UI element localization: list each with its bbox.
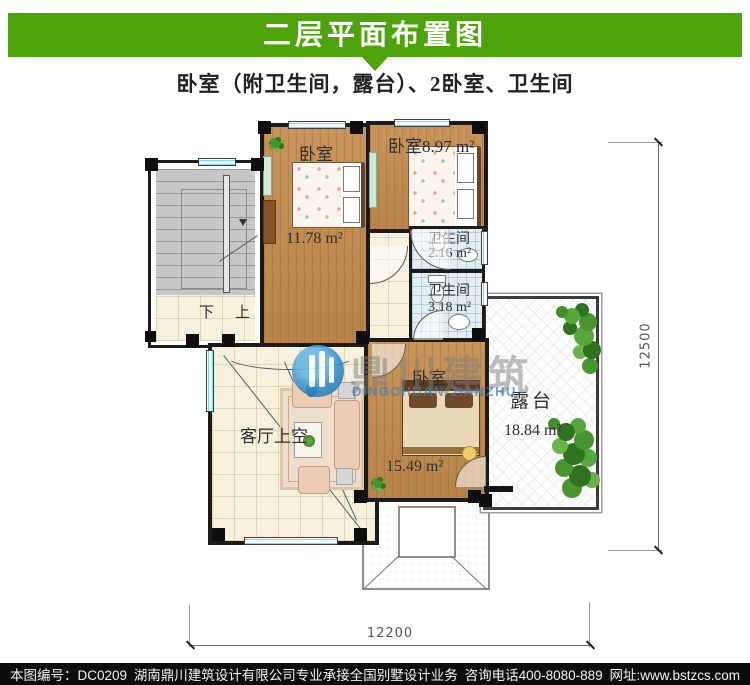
page-subtitle: 卧室（附卫生间，露台）、2卧室、卫生间 <box>0 68 750 98</box>
logo-bar <box>309 355 315 387</box>
plant-icon <box>272 140 280 148</box>
logo-bar <box>319 351 325 387</box>
floor-plan: 下 上 卧室 11.78 m² 卧室8.97 m² <box>0 100 750 660</box>
dim-bottom-value: 12200 <box>340 626 440 641</box>
porch-roof-flat <box>398 506 456 558</box>
watermark-en-text: DINGCHUAN JIANZHU <box>352 384 517 399</box>
bedroom2-pillow <box>457 153 474 183</box>
footer-company: 湖南鼎川建筑设计有限公司专业承接全国别墅设计业务 <box>134 664 458 684</box>
terrace-area: 18.84 m² <box>504 422 561 440</box>
armchair-bottom <box>298 466 330 494</box>
bedroom1-pillow <box>343 197 360 223</box>
stair-rail <box>223 175 230 293</box>
bedroom1-label: 卧室 <box>299 140 333 165</box>
footer-drawing-no: 本图编号：DC0209 <box>10 664 127 684</box>
bedroom1-closet <box>263 156 272 196</box>
column <box>222 334 235 347</box>
dim-ext-line <box>608 550 662 551</box>
bath2-window <box>481 282 488 306</box>
sofa-right <box>334 400 360 470</box>
bedroom2-label: 卧室8.97 m² <box>388 132 474 157</box>
dim-right-value: 12500 <box>639 316 654 376</box>
side-table <box>336 468 353 485</box>
bedroom2-bed <box>408 146 480 228</box>
footer-website: 网址:www.bstzcs.com <box>609 664 740 684</box>
bedroom2-window <box>394 119 450 127</box>
bath1-window <box>481 231 488 265</box>
watermark-logo-icon <box>292 345 344 397</box>
column <box>145 331 156 342</box>
footer-bar: 本图编号：DC0209 湖南鼎川建筑设计有限公司专业承接全国别墅设计业务 咨询电… <box>0 663 750 685</box>
bedroom1-dresser <box>263 200 276 244</box>
column <box>479 494 492 507</box>
column <box>145 158 158 171</box>
column <box>472 328 485 341</box>
dim-line-bottom <box>190 645 590 646</box>
living-left-window <box>206 350 214 412</box>
footer-phone: 咨询电话400-8080-889 <box>465 664 603 684</box>
bedroom1-pillow <box>343 166 360 192</box>
column <box>472 121 485 134</box>
column <box>212 528 225 541</box>
bedroom3-area: 15.49 m² <box>386 458 443 476</box>
stair-up-label: 上 <box>235 301 250 322</box>
bedroom1-window <box>288 121 346 129</box>
column <box>350 121 363 134</box>
plant-icon <box>374 480 382 488</box>
bedroom1-headboard <box>361 163 365 227</box>
bedroom2-headboard <box>477 147 481 227</box>
stair-down-label: 下 <box>199 301 214 322</box>
bedroom2-closet <box>369 152 377 208</box>
column <box>258 121 271 134</box>
terrace-plants-top <box>556 306 568 318</box>
page-title: 二层平面布置图 <box>8 13 742 57</box>
stair-arrow <box>239 219 247 226</box>
column <box>251 158 264 171</box>
header-bar: 二层平面布置图 <box>8 13 742 57</box>
column <box>354 490 367 503</box>
living-label: 客厅上空 <box>240 422 308 447</box>
dim-ext-line <box>589 602 590 647</box>
stairwell: 下 上 <box>148 160 264 348</box>
terrace-door-leaf <box>484 486 513 492</box>
bedroom2-pillow <box>457 189 474 219</box>
dim-ext-line <box>189 605 190 647</box>
dim-line-right <box>658 142 659 550</box>
bedroom1-area: 11.78 m² <box>286 230 343 248</box>
logo-bar <box>329 357 334 383</box>
bedroom1-duvet <box>293 163 341 227</box>
column <box>186 334 199 347</box>
stair-inner-outline <box>181 189 247 289</box>
stair-window <box>198 158 236 166</box>
column <box>354 528 367 541</box>
screenshot-root: 二层平面布置图 卧室（附卫生间，露台）、2卧室、卫生间 下 上 <box>0 0 750 685</box>
bedroom1-bed <box>292 162 364 228</box>
bath2-sink <box>448 314 470 330</box>
dim-ext-line <box>608 142 662 143</box>
living-bottom-window <box>244 537 338 545</box>
bedroom2-duvet <box>409 147 455 227</box>
bath2-label: 卫生间 <box>428 280 470 300</box>
